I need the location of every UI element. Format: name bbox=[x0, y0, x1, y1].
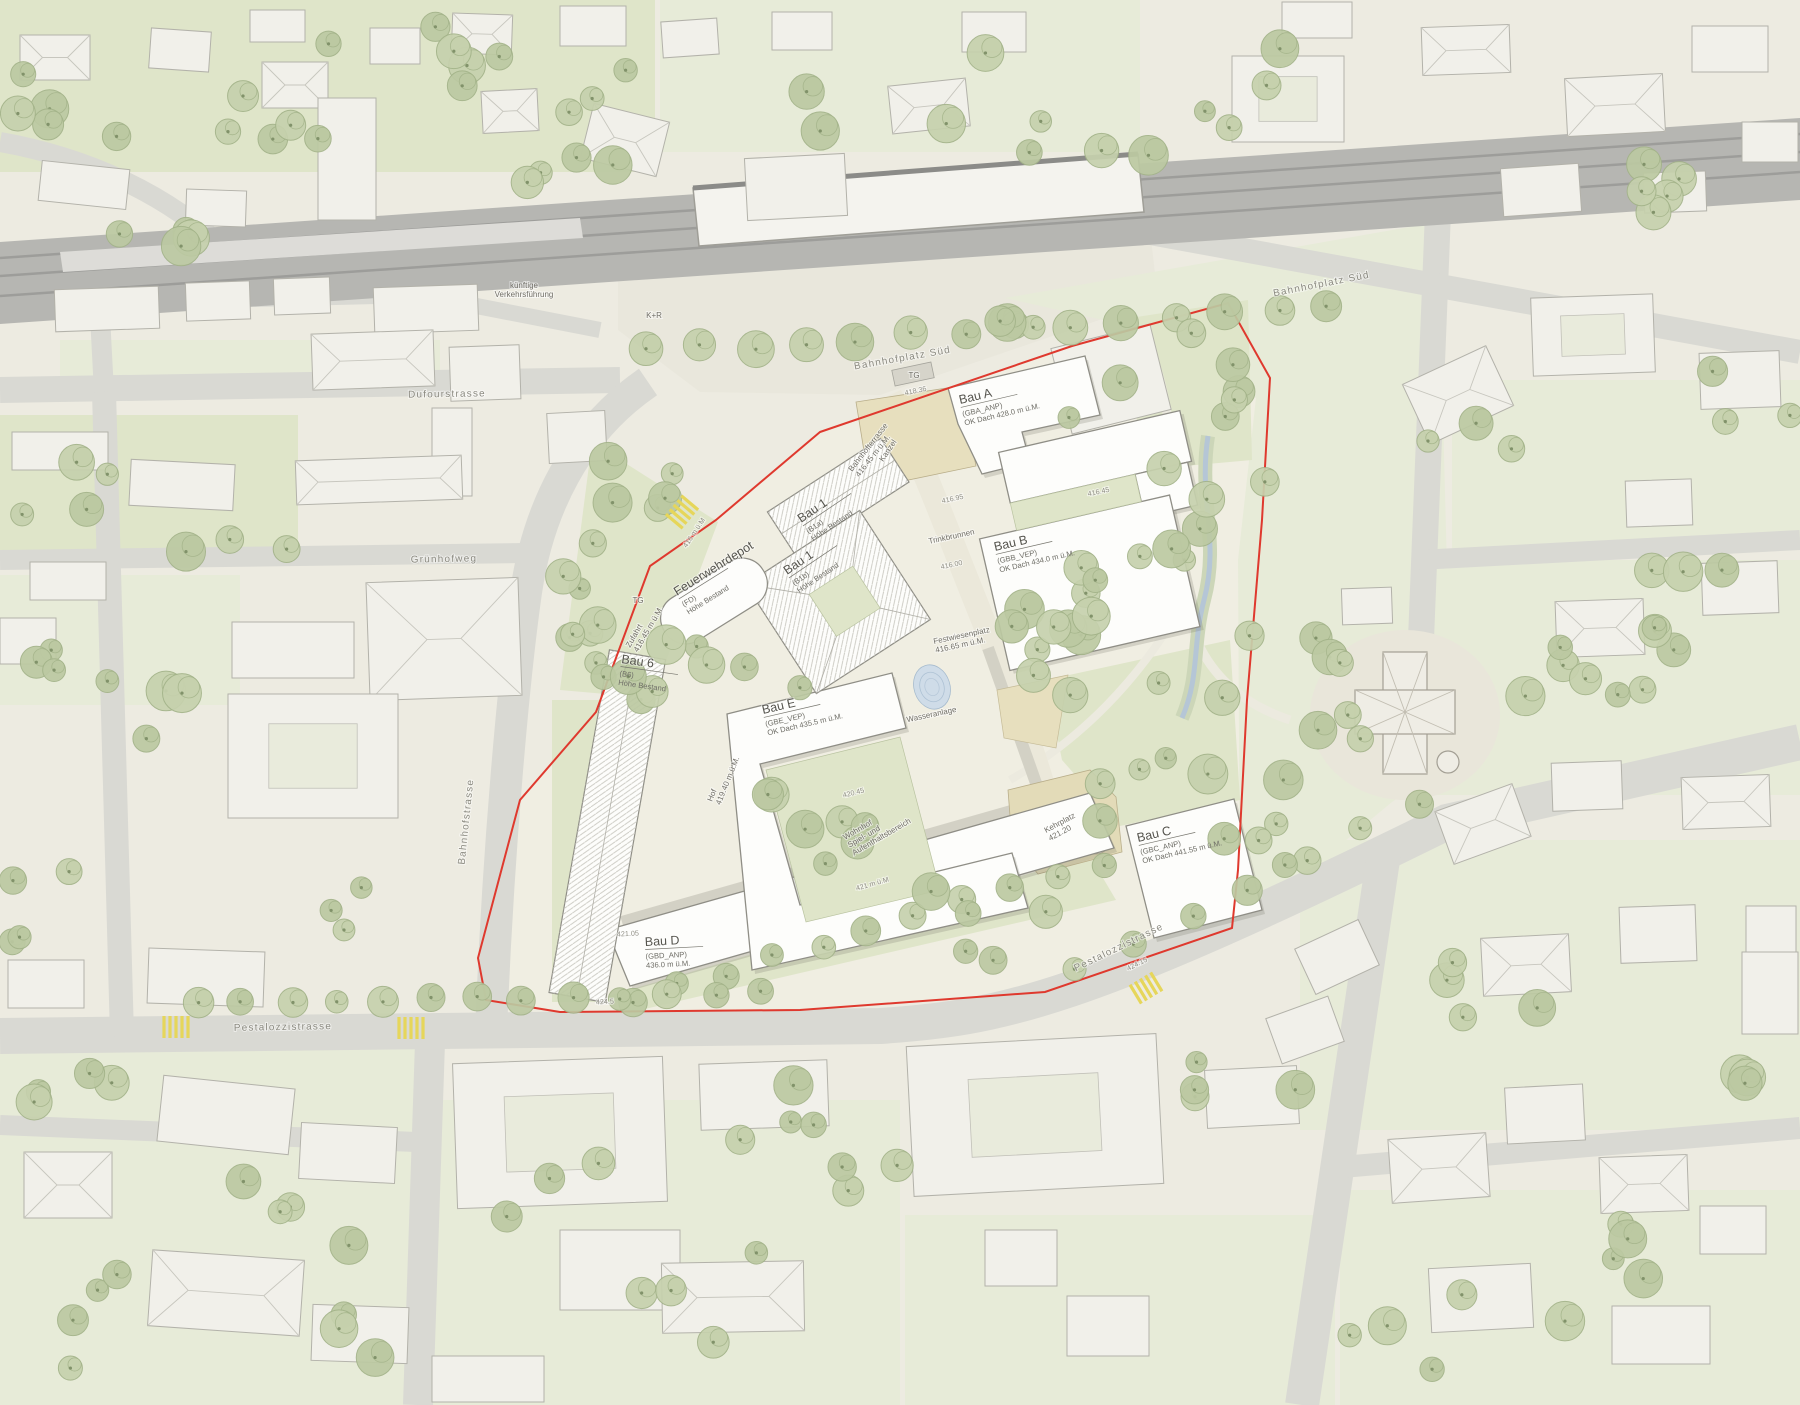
context-building bbox=[744, 153, 847, 220]
place-label-kiss-and-ride: K+R bbox=[646, 311, 662, 320]
context-building bbox=[481, 89, 539, 134]
street-label-gruenhofweg: Grünhofweg bbox=[411, 553, 478, 565]
context-building bbox=[54, 286, 159, 332]
street-label-dufourstrasse: Dufourstrasse bbox=[408, 388, 486, 400]
context-building bbox=[273, 277, 330, 315]
context-building bbox=[1742, 952, 1798, 1034]
context-building bbox=[906, 1034, 1164, 1197]
context-building bbox=[1067, 1296, 1149, 1356]
context-building bbox=[1428, 1263, 1533, 1332]
context-building bbox=[1746, 906, 1796, 952]
context-building bbox=[1551, 761, 1623, 811]
context-building bbox=[1565, 73, 1666, 136]
site-plan-map: Bau A(GBA_ANP)OK Dach 428.0 m ü.M.Bau B(… bbox=[0, 0, 1800, 1405]
context-building bbox=[1625, 479, 1693, 527]
context-building bbox=[370, 28, 420, 64]
context-building bbox=[30, 562, 106, 600]
context-building bbox=[373, 284, 479, 334]
context-building bbox=[1341, 587, 1392, 625]
context-building bbox=[129, 459, 235, 510]
context-building bbox=[228, 694, 398, 818]
context-building bbox=[157, 1075, 295, 1154]
context-building bbox=[366, 577, 522, 700]
context-building bbox=[560, 6, 626, 46]
context-building bbox=[232, 622, 354, 678]
context-building bbox=[1612, 1306, 1710, 1364]
context-building bbox=[985, 1230, 1057, 1286]
context-building bbox=[1388, 1133, 1490, 1204]
context-building bbox=[1700, 1206, 1766, 1254]
context-building bbox=[1500, 163, 1581, 216]
context-building bbox=[1421, 24, 1511, 75]
place-label-tg-nord: TG bbox=[908, 371, 919, 380]
svg-text:Bau D: Bau D bbox=[644, 933, 679, 949]
context-building bbox=[38, 161, 130, 210]
context-building bbox=[432, 1356, 544, 1402]
context-building bbox=[1531, 294, 1656, 376]
context-building bbox=[772, 12, 832, 50]
context-building bbox=[318, 98, 376, 220]
elevation-label-8: 424.5 bbox=[596, 997, 614, 1007]
context-building bbox=[299, 1123, 398, 1184]
context-building bbox=[311, 330, 435, 390]
context-building bbox=[250, 10, 305, 42]
context-building bbox=[24, 1152, 112, 1218]
context-building bbox=[1505, 1084, 1586, 1144]
context-building bbox=[661, 18, 719, 58]
context-building bbox=[1481, 934, 1572, 997]
site-plan-page: Bau A(GBA_ANP)OK Dach 428.0 m ü.M.Bau B(… bbox=[0, 0, 1800, 1405]
context-building bbox=[185, 281, 250, 321]
context-building bbox=[1232, 56, 1344, 142]
context-building bbox=[1619, 905, 1697, 964]
context-building bbox=[295, 455, 462, 505]
context-building bbox=[149, 28, 212, 72]
context-building bbox=[1599, 1154, 1689, 1213]
context-building bbox=[1282, 2, 1352, 38]
place-label-tg-west: TG bbox=[632, 596, 643, 605]
context-building bbox=[1742, 122, 1798, 162]
context-building bbox=[8, 960, 84, 1008]
context-building bbox=[148, 1250, 305, 1336]
context-building bbox=[1681, 774, 1771, 829]
street-label-pestalozzistrasse-west: Pestalozzistrasse bbox=[234, 1021, 332, 1034]
elevation-label-7: 421.05 bbox=[617, 928, 639, 938]
context-building bbox=[1692, 26, 1768, 72]
